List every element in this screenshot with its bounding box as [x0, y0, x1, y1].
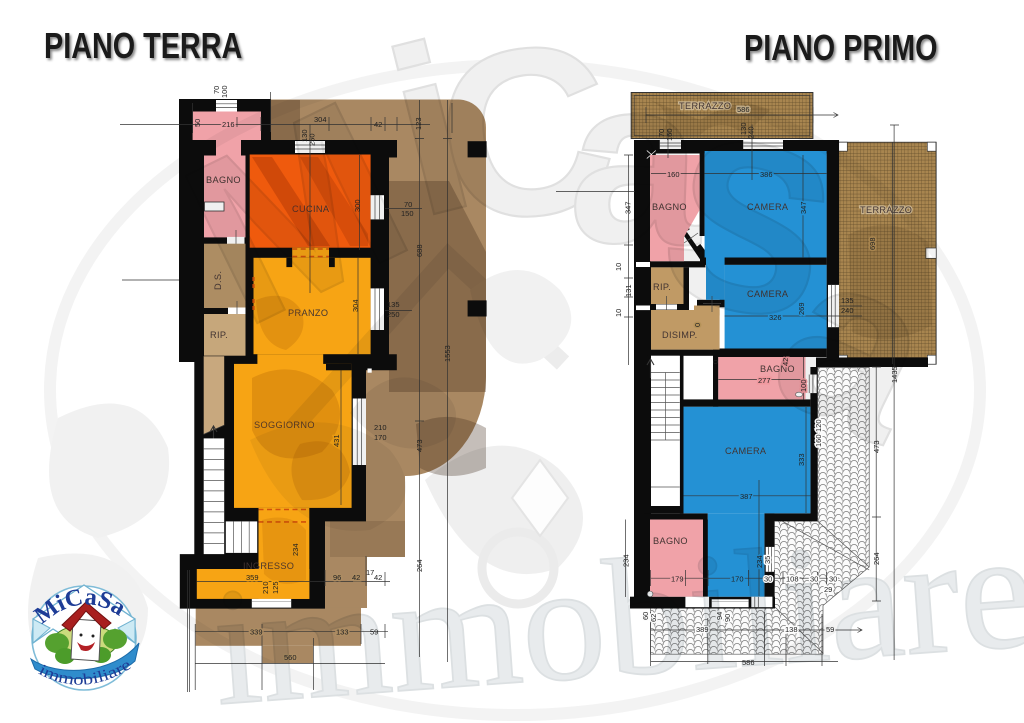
- svg-text:100: 100: [220, 85, 229, 98]
- svg-text:42: 42: [374, 120, 382, 129]
- svg-text:10: 10: [614, 309, 623, 317]
- svg-text:70: 70: [404, 200, 412, 209]
- svg-text:PIANO TERRA: PIANO TERRA: [44, 25, 242, 66]
- svg-text:PIANO PRIMO: PIANO PRIMO: [744, 27, 937, 68]
- svg-text:0: 0: [711, 360, 720, 364]
- svg-text:CAMERA: CAMERA: [725, 446, 767, 456]
- svg-text:387: 387: [740, 492, 753, 501]
- svg-text:1553: 1553: [443, 345, 452, 362]
- svg-text:RIP.: RIP.: [210, 330, 228, 340]
